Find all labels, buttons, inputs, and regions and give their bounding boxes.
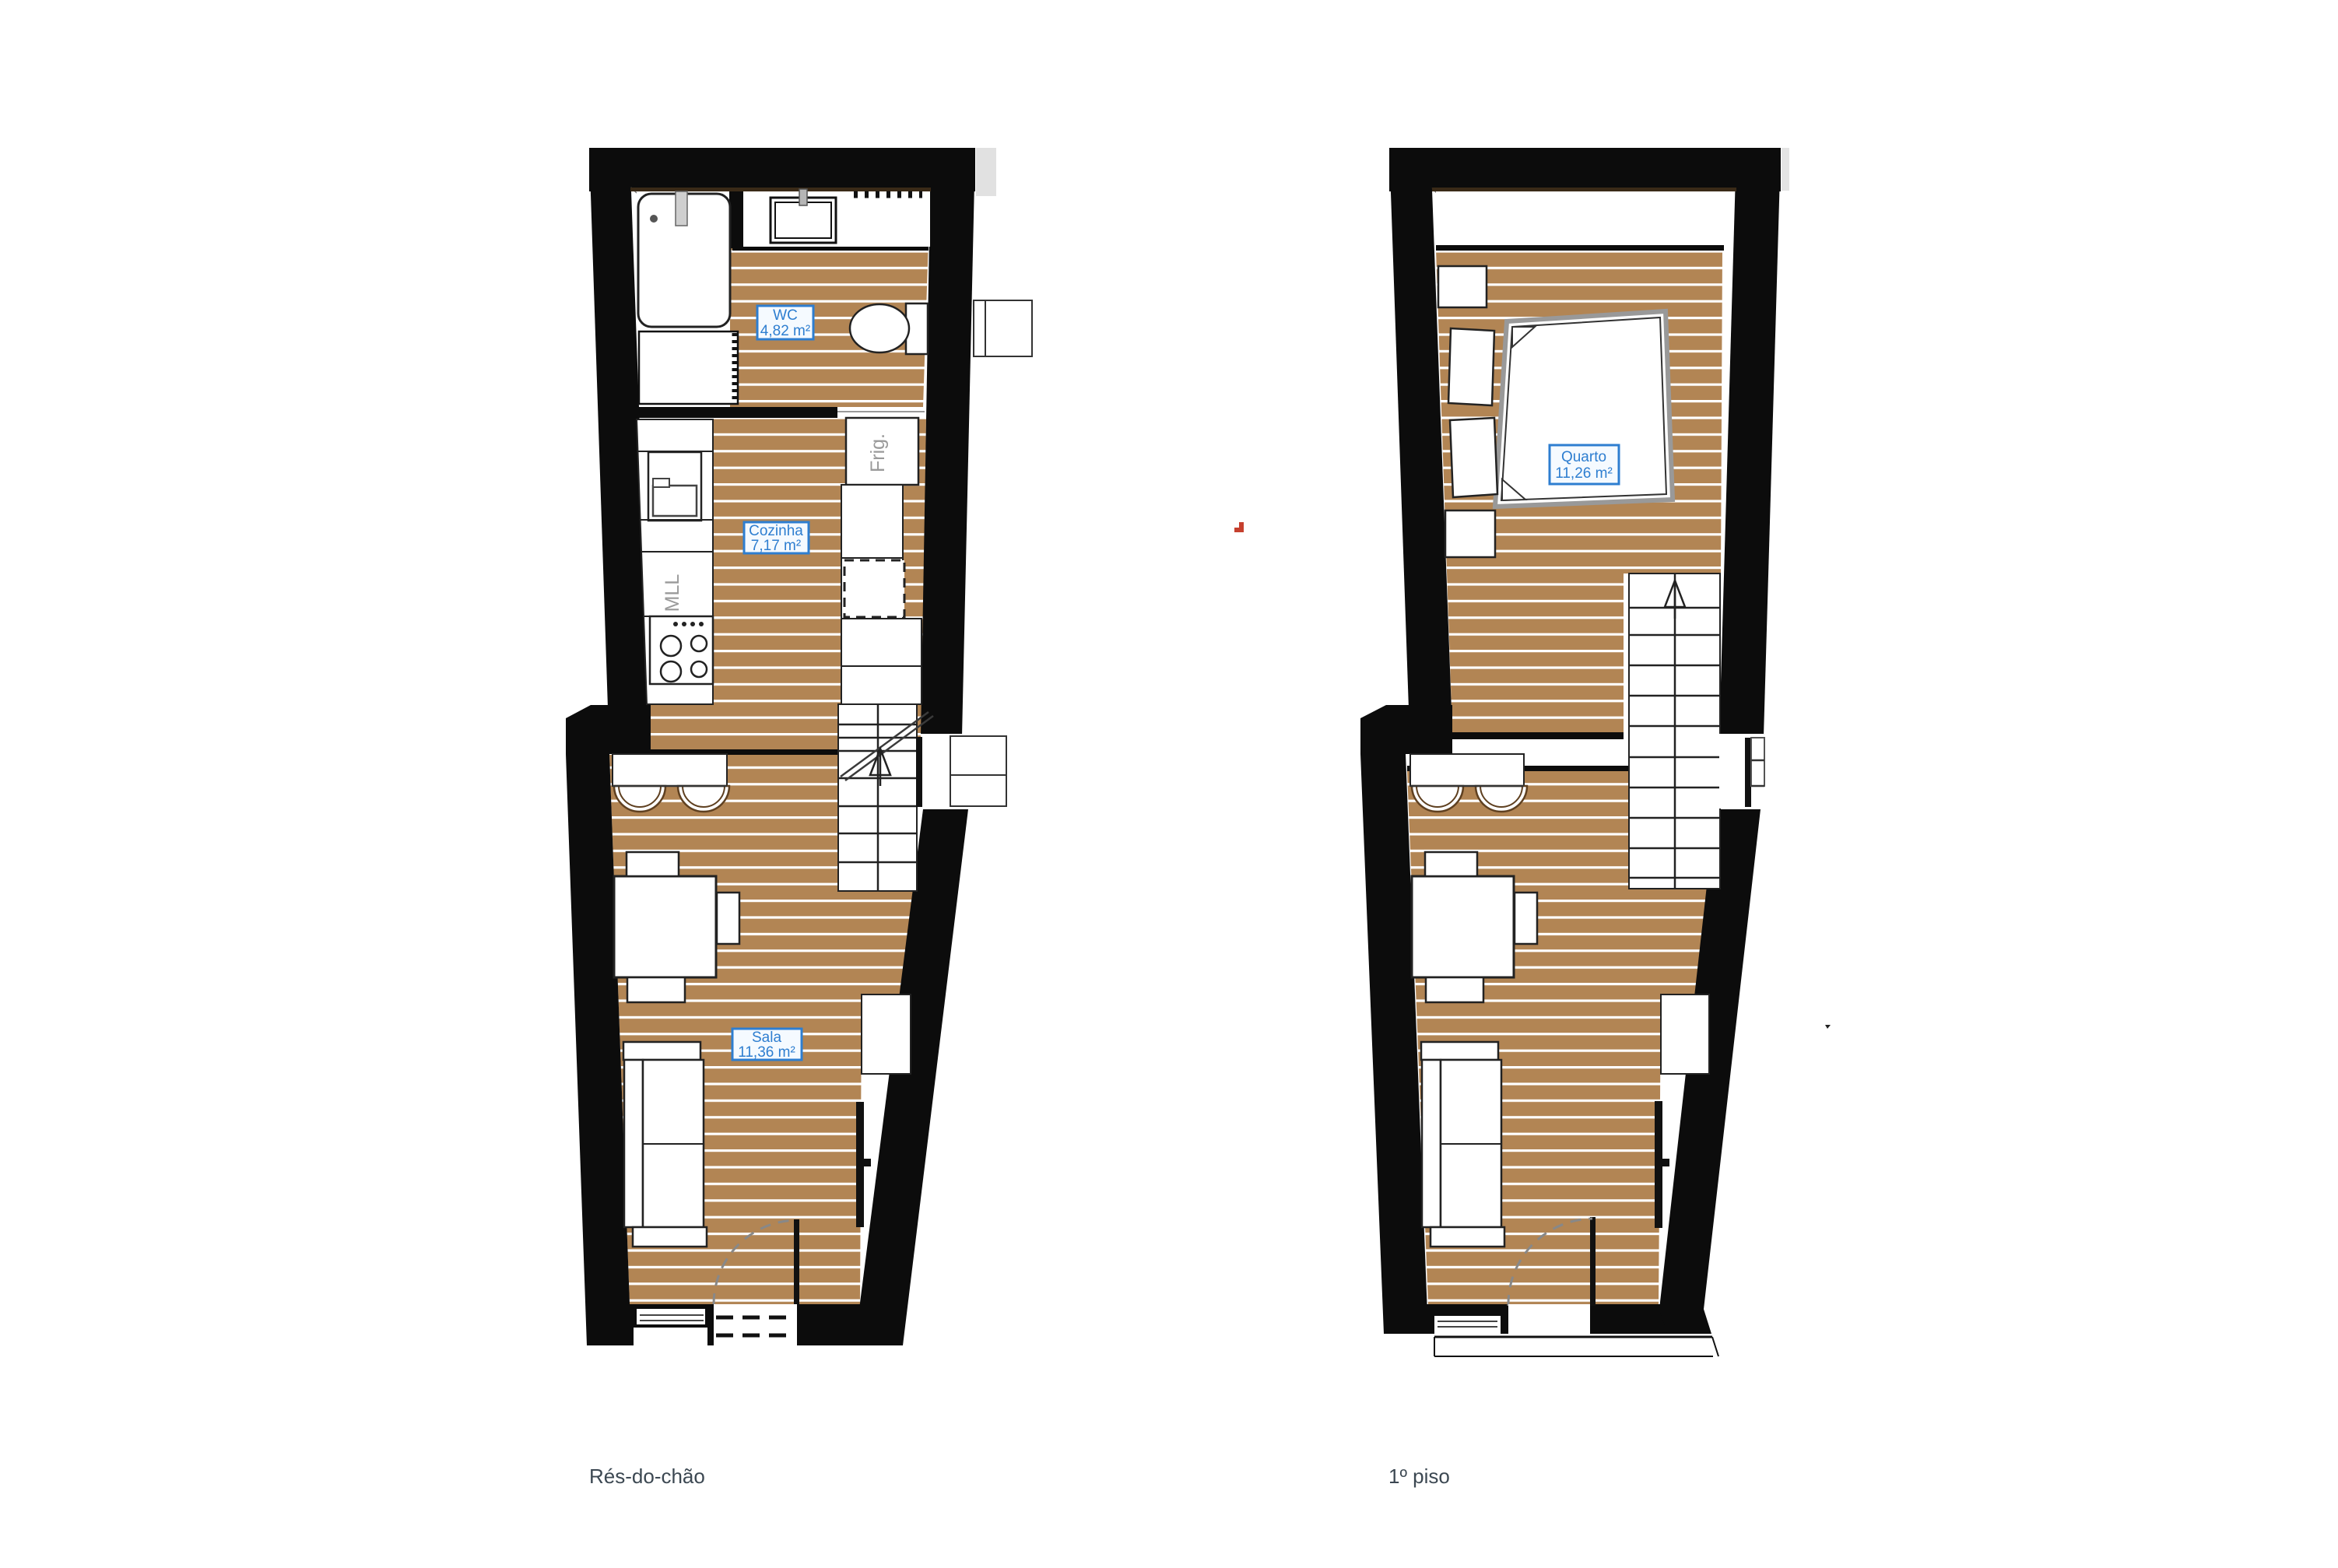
svg-text:Sala: Sala [752,1030,781,1046]
svg-text:WC: WC [773,307,798,324]
svg-text:11,36 m²: 11,36 m² [738,1044,795,1061]
svg-text:Cozinha: Cozinha [749,523,803,539]
svg-text:7,17 m²: 7,17 m² [751,538,801,554]
svg-text:Quarto: Quarto [1561,449,1606,465]
svg-text:11,26 m²: 11,26 m² [1555,465,1613,482]
svg-text:4,82 m²: 4,82 m² [760,323,810,339]
svg-text:1º piso: 1º piso [1388,1465,1450,1488]
svg-text:Frig.: Frig. [867,433,889,472]
svg-text:Rés-do-chão: Rés-do-chão [589,1465,705,1488]
svg-text:MLL: MLL [662,574,683,612]
